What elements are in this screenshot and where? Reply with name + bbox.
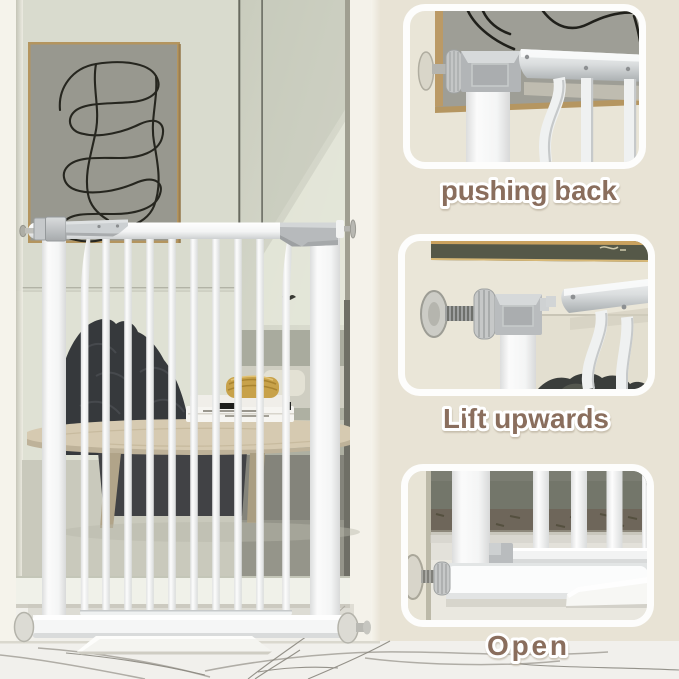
svg-text:Lift upwards: Lift upwards	[443, 403, 609, 434]
svg-text:Open: Open	[487, 630, 567, 661]
svg-text:pushing back: pushing back	[441, 175, 617, 206]
